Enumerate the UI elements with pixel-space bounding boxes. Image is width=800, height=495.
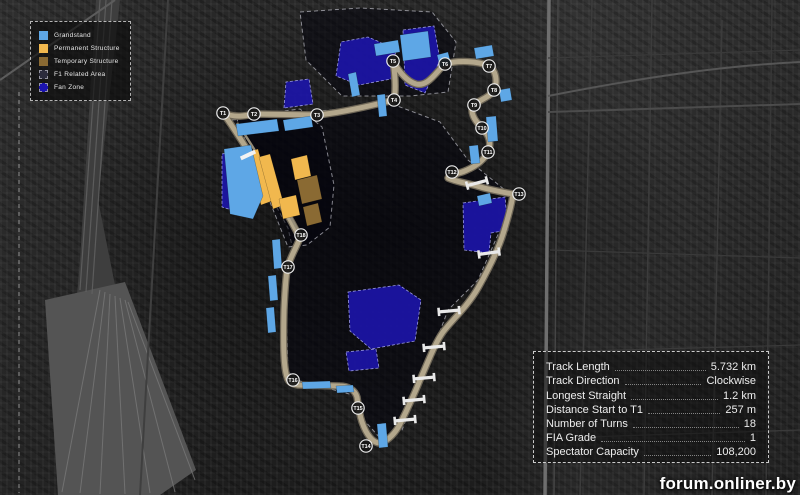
turn-marker-label: T8 [491,88,497,94]
stats-value: 5.732 km [711,361,756,373]
stats-row: Distance Start to T1257 m [546,402,756,416]
stats-row: Longest Straight1.2 km [546,387,756,401]
legend-swatch [39,44,48,53]
grandstand [469,145,480,164]
stats-dotted-leader [644,455,711,456]
stats-dotted-leader [648,413,720,414]
turn-marker-label: T14 [361,444,370,450]
legend-item-label: F1 Related Area [54,71,105,78]
legend-swatch [39,31,48,40]
turn-marker-label: T6 [442,62,448,68]
legend-item-label: Grandstand [54,32,91,39]
legend-list: GrandstandPermanent StructureTemporary S… [39,29,120,94]
circuit-map-screenshot: T1T2T3T4T5T6T7T8T9T10T11T12T13T14T15T16T… [0,0,800,495]
grandstand [499,88,512,102]
stats-value: 108,200 [716,446,756,458]
track-stats-rows: Track Length5.732 kmTrack DirectionClock… [546,359,756,458]
turn-marker: T14 [360,440,372,452]
turn-marker: T16 [287,374,299,386]
stats-value: 1 [750,432,756,444]
grandstand [268,275,278,301]
turn-marker-label: T15 [353,406,362,412]
legend-item: Fan Zone [39,81,120,94]
stats-dotted-leader [633,427,739,428]
track-stats-box: Track Length5.732 kmTrack DirectionClock… [533,351,769,463]
turn-marker: T12 [446,166,458,178]
turn-marker-label: T16 [288,378,297,384]
stats-label: Longest Straight [546,390,626,402]
turn-marker: T10 [476,122,488,134]
stats-row: Number of Turns18 [546,416,756,430]
fan-zone [284,79,313,108]
stats-label: Distance Start to T1 [546,404,643,416]
stats-value: Clockwise [706,375,756,387]
turn-marker: T4 [388,94,400,106]
turn-marker: T8 [488,84,500,96]
stats-label: Track Length [546,361,610,373]
turn-marker: T15 [352,402,364,414]
grandstand [474,45,494,59]
grandstand [272,239,282,269]
stats-dotted-leader [601,441,745,442]
stats-label: Track Direction [546,375,620,387]
turn-marker: T3 [311,109,323,121]
turn-marker-label: T11 [484,150,493,156]
stats-row: Track Length5.732 km [546,359,756,373]
turn-marker: T7 [483,60,495,72]
turn-marker-label: T2 [251,112,257,118]
turn-marker-label: T10 [477,126,486,132]
turn-marker: T2 [248,108,260,120]
fan-zone [346,349,379,371]
legend-item-label: Permanent Structure [54,45,120,52]
legend-item: Grandstand [39,29,120,42]
watermark-text: forum.onliner.by [660,474,796,494]
legend-item: Permanent Structure [39,42,120,55]
stats-label: FIA Grade [546,432,596,444]
turn-marker-label: T13 [514,192,523,198]
grandstand [336,385,354,393]
stats-row: FIA Grade1 [546,430,756,444]
turn-marker-label: T5 [390,59,396,65]
turn-marker-label: T4 [391,98,397,104]
turn-marker-label: T7 [486,64,492,70]
stats-label: Spectator Capacity [546,446,639,458]
turn-marker-label: T17 [283,265,292,271]
legend-item: F1 Related Area [39,68,120,81]
grandstand [377,94,387,117]
legend-swatch [39,70,48,79]
turn-marker: T17 [282,261,294,273]
stats-dotted-leader [625,384,702,385]
legend-swatch [39,83,48,92]
grandstand [377,423,388,448]
turn-marker: T1 [217,107,229,119]
stats-dotted-leader [615,370,706,371]
turn-marker: T13 [513,188,525,200]
turn-marker: T5 [387,55,399,67]
turn-marker-label: T18 [296,233,305,239]
permanent-structure [279,195,300,219]
stats-dotted-leader [631,399,718,400]
turn-marker-label: T1 [220,111,226,117]
turn-marker: T18 [295,229,307,241]
stats-value: 1.2 km [723,390,756,402]
stats-row: Track DirectionClockwise [546,373,756,387]
stats-value: 18 [744,418,756,430]
grandstand [302,381,331,389]
stats-row: Spectator Capacity108,200 [546,444,756,458]
legend-item-label: Fan Zone [54,84,84,91]
legend-item: Temporary Structure [39,55,120,68]
turn-marker-label: T3 [314,113,320,119]
turn-marker: T9 [468,99,480,111]
turn-marker-label: T12 [447,170,456,176]
stats-label: Number of Turns [546,418,628,430]
stats-value: 257 m [725,404,756,416]
turn-marker-label: T9 [471,103,477,109]
grandstand [266,307,276,333]
legend-swatch [39,57,48,66]
grandstand [400,31,431,61]
turn-marker: T6 [439,58,451,70]
legend-item-label: Temporary Structure [54,58,119,65]
legend-box: GrandstandPermanent StructureTemporary S… [30,21,131,101]
turn-marker: T11 [482,146,494,158]
